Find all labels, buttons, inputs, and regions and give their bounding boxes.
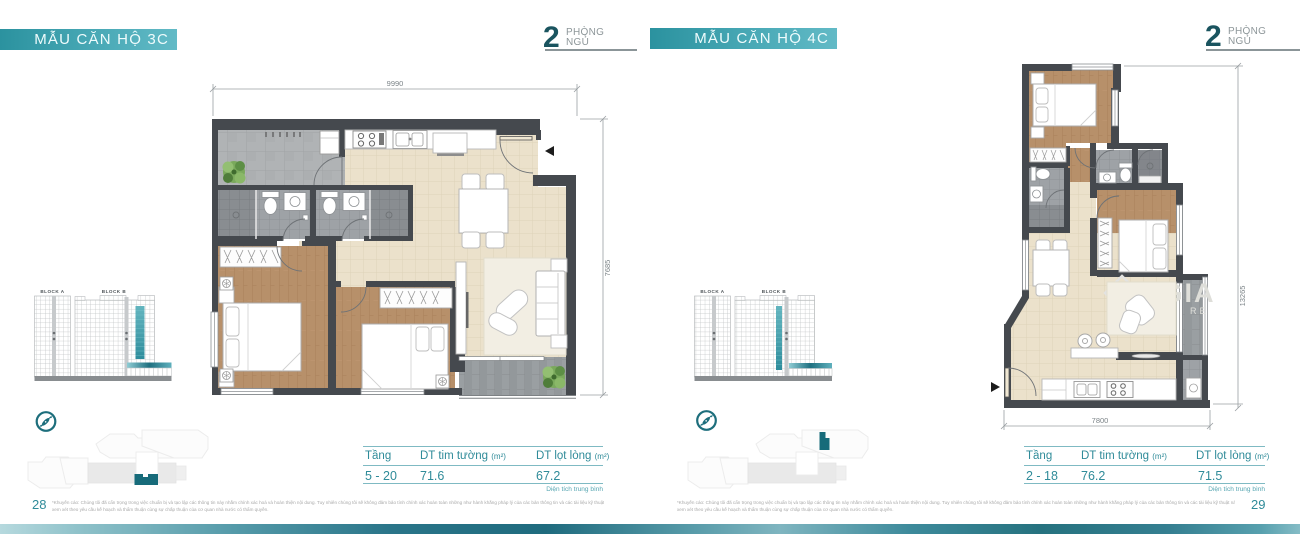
svg-text:BLOCK A: BLOCK A — [700, 289, 724, 294]
svg-text:BLOCK B: BLOCK B — [102, 289, 127, 294]
svg-text:RE: RE — [1190, 306, 1209, 316]
svg-text:9990: 9990 — [387, 79, 404, 88]
svg-text:13265: 13265 — [1238, 286, 1247, 307]
svg-text:7685: 7685 — [603, 260, 612, 277]
svg-text:7800: 7800 — [1092, 416, 1109, 425]
svg-text:BLOCK A: BLOCK A — [40, 289, 64, 294]
svg-text:BLOCK B: BLOCK B — [762, 289, 787, 294]
